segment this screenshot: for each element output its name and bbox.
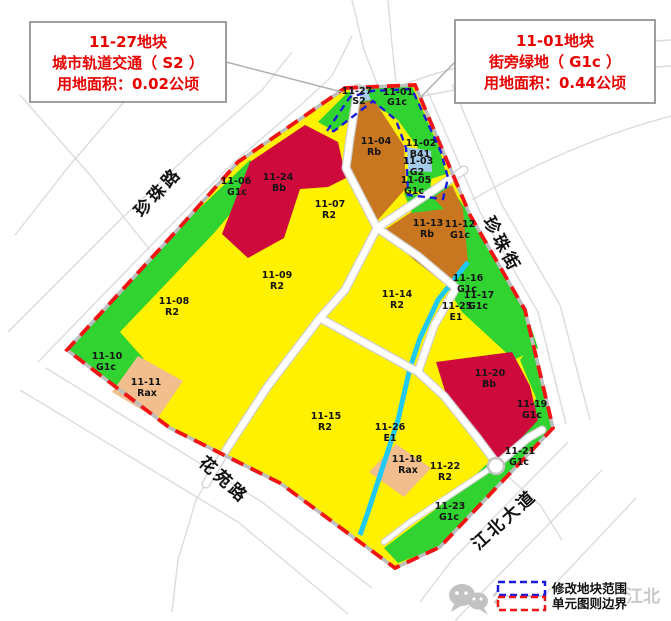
callout-box-right: 11-01地块 街旁绿地（ G1c ） 用地面积：0.44公顷 xyxy=(455,20,655,103)
callout-right-line3: 用地面积：0.44公顷 xyxy=(484,74,626,92)
parcel-label-11-14-id: 11-14 xyxy=(382,289,413,300)
parcel-label-11-14-code: R2 xyxy=(390,300,404,311)
parcel-label-11-04-id: 11-04 xyxy=(361,136,392,147)
parcel-label-11-18-code: Rax xyxy=(398,465,418,476)
parcel-label-11-08-code: R2 xyxy=(165,307,179,318)
callout-box-left: 11-27地块 城市轨道交通（ S2 ） 用地面积：0.02公顷 xyxy=(30,22,226,102)
planning-map: 11-27S211-01G1c11-04Rb11-02B4111-03G211-… xyxy=(0,0,671,621)
street-name-zhenzhu-road: 珍珠路 xyxy=(130,163,186,221)
parcel-label-11-23-id: 11-23 xyxy=(435,501,465,512)
parcel-label-11-01-code: G1c xyxy=(387,97,407,108)
parcel-label-11-11-code: Rax xyxy=(137,388,157,399)
parcel-label-11-19-id: 11-19 xyxy=(517,399,547,410)
parcel-label-11-07-code: R2 xyxy=(322,210,336,221)
parcel-label-11-05-id: 11-05 xyxy=(401,175,431,186)
parcel-label-11-19-code: G1c xyxy=(522,410,542,421)
parcel-label-11-06-code: G1c xyxy=(227,187,247,198)
parcel-label-11-15-code: R2 xyxy=(318,422,332,433)
parcel-label-11-26-id: 11-26 xyxy=(375,422,406,433)
parcel-label-11-08-id: 11-08 xyxy=(159,296,190,307)
parcel-label-11-12-id: 11-12 xyxy=(445,219,475,230)
watermark-suffix: 江北 xyxy=(626,587,660,607)
parcel-label-11-20-id: 11-20 xyxy=(475,368,506,379)
parcel-label-11-10-id: 11-10 xyxy=(92,351,123,362)
parcel-label-11-21-code: G1c xyxy=(509,457,529,468)
parcel-label-11-09-code: R2 xyxy=(270,281,284,292)
parcel-label-11-23-code: G1c xyxy=(439,512,459,523)
callout-right-line2: 街旁绿地（ G1c ） xyxy=(488,53,621,71)
parcel-label-11-11-id: 11-11 xyxy=(131,377,161,388)
parcel-label-11-27-code: S2 xyxy=(352,96,365,107)
legend-swatch-unit-boundary xyxy=(498,597,545,610)
legend-swatch-modified-extent xyxy=(498,582,545,595)
legend-label-unit-boundary: 单元图则边界 xyxy=(552,596,628,611)
parcel-label-11-13-id: 11-13 xyxy=(413,218,443,229)
parcel-label-11-18-id: 11-18 xyxy=(392,454,423,465)
parcel-label-11-22-id: 11-22 xyxy=(430,461,460,472)
callout-left-line2: 城市轨道交通（ S2 ） xyxy=(52,54,204,72)
callout-leader-left xyxy=(226,62,342,92)
parcel-label-11-10-code: G1c xyxy=(96,362,116,373)
parcel-label-11-20-code: Bb xyxy=(482,379,496,390)
parcel-label-11-15-id: 11-15 xyxy=(311,411,341,422)
callout-left-line1: 11-27地块 xyxy=(89,33,168,51)
parcel-label-11-13-code: Rb xyxy=(420,229,434,240)
parcel-label-11-09-id: 11-09 xyxy=(262,270,292,281)
parcel-label-11-02-id: 11-02 xyxy=(406,138,436,149)
legend-label-modified-extent: 修改地块范围 xyxy=(551,581,627,596)
parcel-label-11-03-id: 11-03 xyxy=(403,156,433,167)
callout-left-line3: 用地面积：0.02公顷 xyxy=(57,75,199,93)
parcel-label-11-05-code: G1c xyxy=(404,186,424,197)
parcel-label-11-25-code: E1 xyxy=(449,312,462,323)
callout-right-line1: 11-01地块 xyxy=(516,32,595,50)
parcel-label-11-21-id: 11-21 xyxy=(505,446,535,457)
parcel-label-11-25-id: 11-25 xyxy=(442,301,472,312)
parcel-label-11-24-code: Bb xyxy=(272,183,286,194)
parcel-label-11-07-id: 11-07 xyxy=(315,199,345,210)
wechat-icon xyxy=(449,584,488,615)
parcel-label-11-04-code: Rb xyxy=(367,147,381,158)
map-canvas: 11-27S211-01G1c11-04Rb11-02B4111-03G211-… xyxy=(0,0,671,621)
parcel-label-11-26-code: E1 xyxy=(383,433,396,444)
parcel-label-11-06-id: 11-06 xyxy=(221,176,252,187)
parcel-label-11-22-code: R2 xyxy=(438,472,452,483)
parcel-label-11-12-code: G1c xyxy=(450,230,470,241)
parcel-label-11-16-id: 11-16 xyxy=(453,273,484,284)
parcel-label-11-24-id: 11-24 xyxy=(263,172,294,183)
parcel-label-11-17-id: 11-17 xyxy=(464,290,494,301)
roundabout xyxy=(488,458,504,474)
